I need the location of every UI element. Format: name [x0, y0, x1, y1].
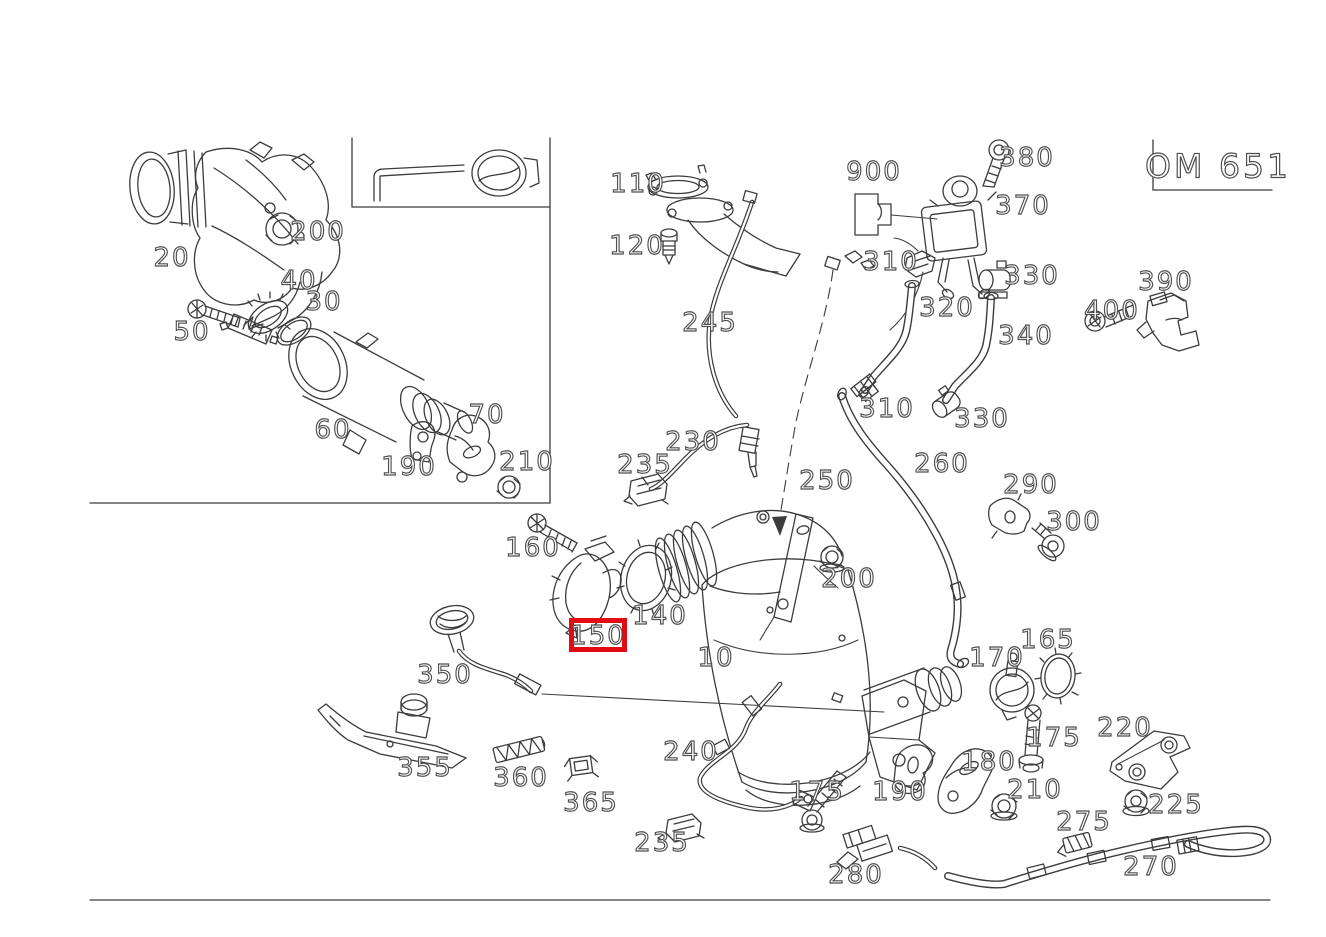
part-label-280[interactable]: 280 — [828, 860, 884, 890]
part-label-330[interactable]: 330 — [1004, 261, 1060, 291]
part-label-365[interactable]: 365 — [563, 788, 619, 818]
part-label-160[interactable]: 160 — [505, 533, 561, 563]
part-label-120[interactable]: 120 — [609, 231, 665, 261]
part-label-210[interactable]: 210 — [499, 447, 555, 477]
part-label-50[interactable]: 50 — [173, 317, 210, 347]
part-label-310[interactable]: 310 — [859, 394, 915, 424]
part-label-180[interactable]: 180 — [961, 747, 1017, 777]
part-label-340[interactable]: 340 — [998, 321, 1054, 351]
part-label-30[interactable]: 30 — [305, 287, 342, 317]
part-label-140[interactable]: 140 — [632, 601, 688, 631]
part-label-400[interactable]: 400 — [1084, 296, 1140, 326]
part-label-275[interactable]: 275 — [1056, 807, 1112, 837]
part-label-240[interactable]: 240 — [663, 737, 719, 767]
part-label-900[interactable]: 900 — [846, 157, 902, 187]
part-label-350[interactable]: 350 — [417, 660, 473, 690]
part-label-10[interactable]: 10 — [697, 643, 734, 673]
part-label-330[interactable]: 330 — [954, 404, 1010, 434]
part-label-60[interactable]: 60 — [314, 415, 351, 445]
part-label-110[interactable]: 110 — [610, 169, 666, 199]
part-label-20[interactable]: 20 — [153, 243, 190, 273]
part-label-390[interactable]: 390 — [1138, 267, 1194, 297]
part-labels-layer: 2020040305060701902101101202459003803703… — [0, 0, 1326, 937]
part-label-270[interactable]: 270 — [1123, 852, 1179, 882]
part-label-210[interactable]: 210 — [1007, 775, 1063, 805]
part-label-250[interactable]: 250 — [799, 466, 855, 496]
part-label-175[interactable]: 175 — [1026, 723, 1082, 753]
part-label-165[interactable]: 165 — [1020, 625, 1076, 655]
part-label-355[interactable]: 355 — [397, 753, 453, 783]
part-label-260[interactable]: 260 — [914, 449, 970, 479]
part-label-150[interactable]: 150 — [570, 621, 626, 651]
part-label-235[interactable]: 235 — [617, 450, 673, 480]
part-label-170[interactable]: 170 — [969, 643, 1025, 673]
part-label-300[interactable]: 300 — [1046, 507, 1102, 537]
part-label-320[interactable]: 320 — [919, 293, 975, 323]
part-label-380[interactable]: 380 — [999, 143, 1055, 173]
part-label-190[interactable]: 190 — [381, 452, 437, 482]
part-label-200[interactable]: 200 — [290, 217, 346, 247]
part-label-370[interactable]: 370 — [995, 191, 1051, 221]
part-label-220[interactable]: 220 — [1097, 713, 1153, 743]
engine-model-label: OM 651 — [1145, 147, 1291, 186]
part-label-225[interactable]: 225 — [1148, 790, 1204, 820]
part-label-310[interactable]: 310 — [863, 247, 919, 277]
part-label-245[interactable]: 245 — [682, 308, 738, 338]
part-label-70[interactable]: 70 — [468, 400, 505, 430]
part-label-200[interactable]: 200 — [821, 564, 877, 594]
part-label-360[interactable]: 360 — [493, 763, 549, 793]
parts-diagram-page: 2020040305060701902101101202459003803703… — [0, 0, 1326, 937]
part-label-190[interactable]: 190 — [872, 777, 928, 807]
part-label-290[interactable]: 290 — [1003, 470, 1059, 500]
part-label-235[interactable]: 235 — [634, 828, 690, 858]
part-label-175[interactable]: 175 — [789, 777, 845, 807]
part-label-230[interactable]: 230 — [665, 427, 721, 457]
